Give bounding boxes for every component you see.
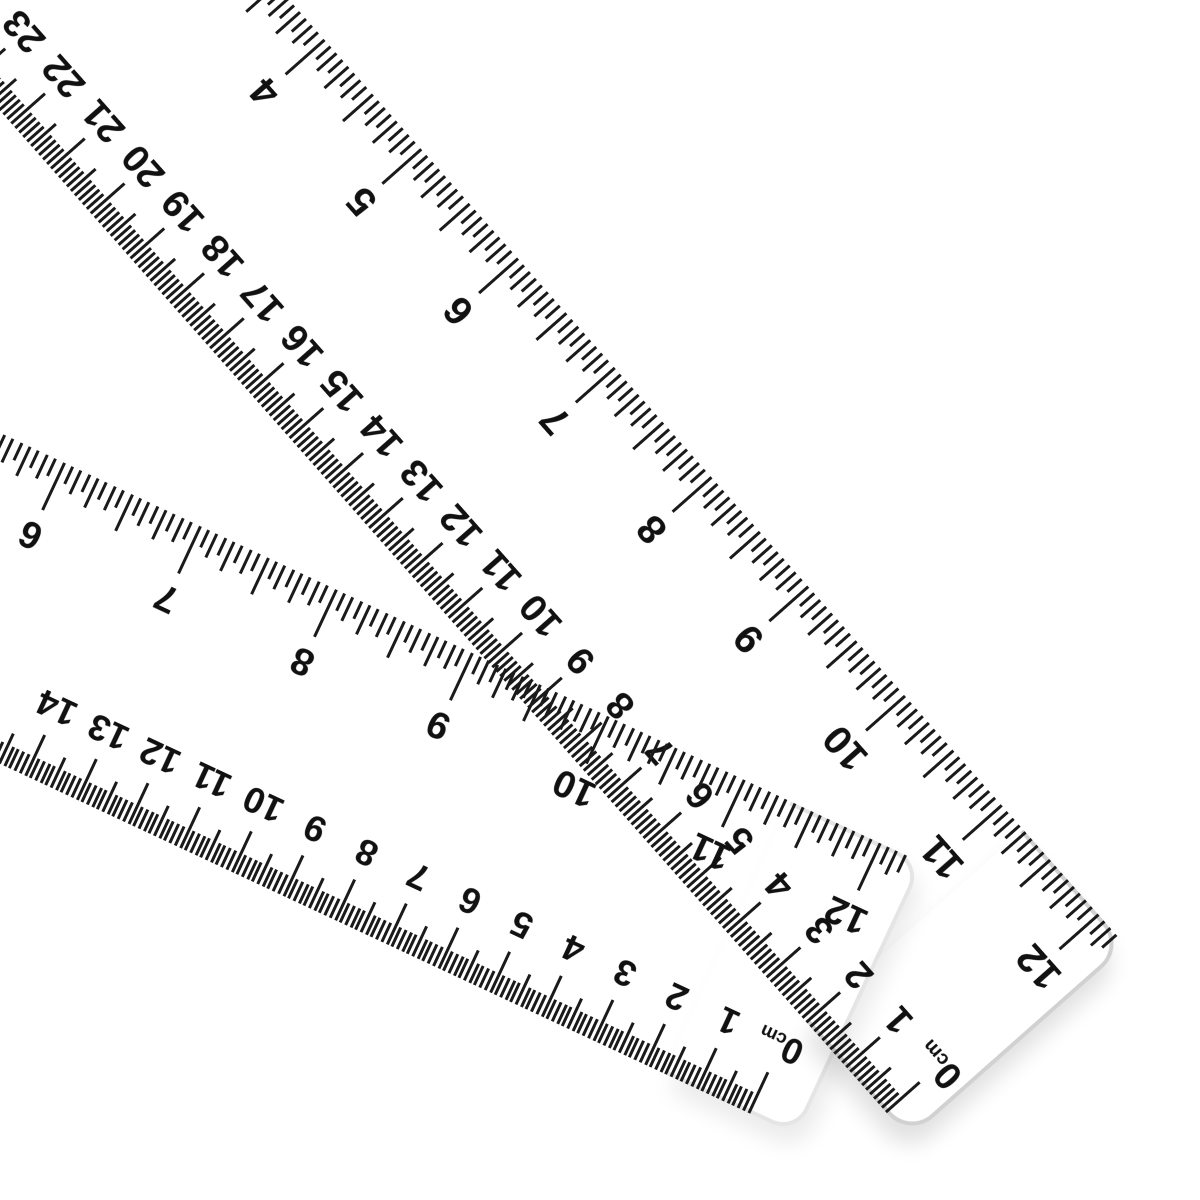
tick-mark xyxy=(0,47,6,79)
photo-canvas: 4567891011122322212019181716151413121110… xyxy=(0,0,1200,1200)
ruler-a-cm-zero-label: 0cm xyxy=(888,1010,991,1119)
ruler-b-cm-zero-label: 0cm xyxy=(722,1005,838,1086)
